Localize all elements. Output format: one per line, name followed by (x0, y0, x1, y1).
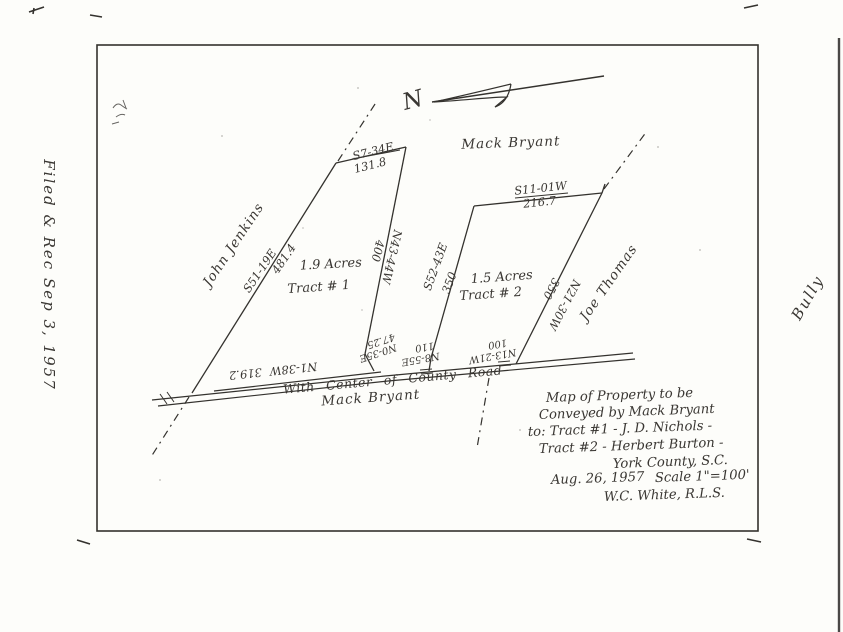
north-arrow-line (432, 76, 604, 102)
tract1-label: Tract # 1 (287, 278, 350, 297)
legend-date: Aug. 26, 1957 (550, 470, 646, 488)
scanned-plat-page: N Mack Bryant John Jenkins Joe Thomas 1.… (0, 0, 843, 632)
tract2-top-distance: 216.7 (521, 193, 557, 211)
tract1-acreage: 1.9 Acres (299, 255, 362, 273)
tract2-left-distance: 350 (439, 270, 460, 295)
tract2-label: Tract # 2 (459, 285, 522, 304)
road-distance: 319.2 (228, 365, 262, 382)
legend-surveyor: W.C. White, R.L.S. (604, 486, 725, 505)
legend-scale: Scale 1"=100' (655, 468, 750, 486)
legend-block: Map of Property to be Conveyed by Mack B… (528, 386, 750, 505)
road-bearing: N1-38W (268, 359, 319, 378)
left-margin-filing-note: Filed & Rec Sep 3, 1957 (40, 158, 58, 391)
tract2-right-distance: 350 (540, 276, 563, 302)
plat-drawing: N Mack Bryant John Jenkins Joe Thomas 1.… (0, 0, 843, 632)
right-margin-note: Bully (787, 272, 827, 324)
tract2-south-extension (477, 378, 489, 448)
owner-top-label: Mack Bryant (460, 133, 561, 152)
scan-edge-marks (29, 5, 839, 632)
north-arrow: N (399, 76, 604, 116)
tract2-acreage: 1.5 Acres (470, 268, 533, 287)
pencil-scribble (112, 100, 127, 124)
tract2-north-extension (604, 131, 647, 189)
north-letter: N (399, 85, 427, 116)
tract1-south-extension (151, 397, 189, 457)
owner-right-label: Joe Thomas (575, 241, 641, 326)
